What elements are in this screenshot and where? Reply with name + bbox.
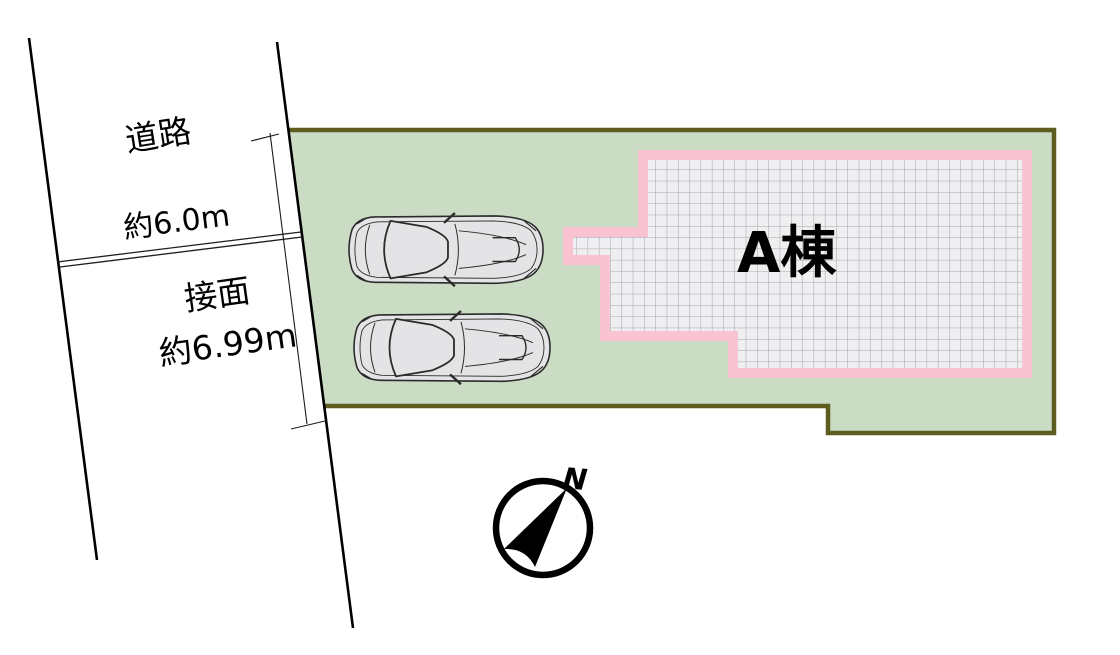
site-plan-canvas: A棟 道路 約6.0m 接面 約6.99m N (0, 0, 1120, 655)
site-plan-drawing: A棟 道路 約6.0m 接面 約6.99m N (0, 0, 1120, 655)
dimension-tick-bottom (291, 421, 325, 429)
road-label: 道路 (123, 111, 194, 160)
car-top-view (349, 213, 543, 286)
road-left-edge-line (29, 38, 97, 560)
compass: N (496, 461, 590, 575)
road-width-label: 約6.0m (121, 198, 231, 246)
frontage-length-label: 約6.99m (156, 315, 299, 373)
building-a-label: A棟 (737, 221, 837, 286)
compass-north-label: N (562, 461, 589, 497)
road-divider-line (60, 237, 302, 267)
car-top-view (354, 311, 550, 384)
frontage-label: 接面 (182, 271, 253, 319)
dimension-tick-top (251, 134, 279, 141)
